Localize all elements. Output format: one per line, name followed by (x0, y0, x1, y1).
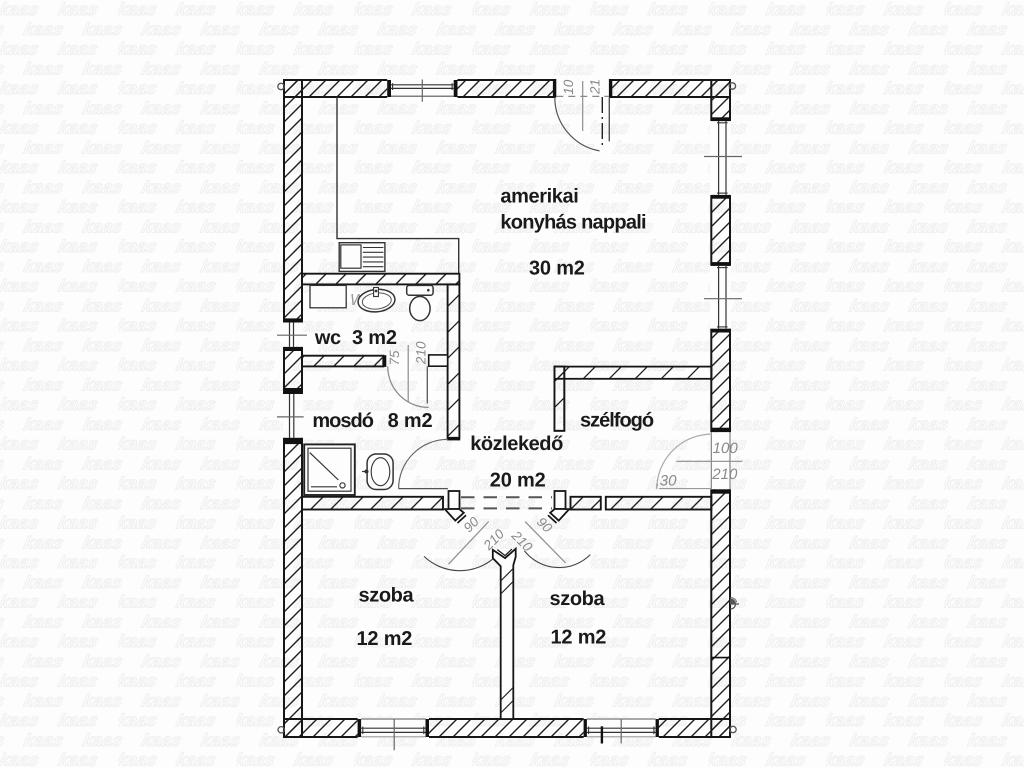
svg-text:8 m2: 8 m2 (388, 410, 433, 432)
svg-text:mosdó: mosdó (312, 410, 373, 432)
svg-text:konyhás nappali: konyhás nappali (500, 212, 646, 234)
svg-text:szoba: szoba (359, 585, 415, 607)
svg-text:10: 10 (561, 79, 576, 95)
svg-text:szélfogó: szélfogó (580, 410, 654, 432)
svg-text:12 m2: 12 m2 (551, 626, 607, 648)
svg-text:amerikai: amerikai (500, 186, 578, 208)
svg-text:12 m2: 12 m2 (357, 628, 413, 650)
svg-text:szoba: szoba (550, 588, 606, 610)
svg-text:wc: wc (314, 327, 341, 349)
svg-text:210: 210 (414, 341, 429, 365)
svg-text:75: 75 (387, 350, 402, 366)
svg-text:210: 210 (711, 466, 738, 483)
svg-text:21: 21 (588, 79, 603, 95)
svg-text:30 m2: 30 m2 (529, 257, 585, 279)
svg-text:,30: ,30 (656, 473, 678, 490)
svg-text:közlekedő: közlekedő (470, 433, 563, 455)
svg-text:3 m2: 3 m2 (352, 327, 397, 349)
svg-text:100: 100 (713, 440, 739, 457)
svg-text:20 m2: 20 m2 (490, 470, 546, 492)
